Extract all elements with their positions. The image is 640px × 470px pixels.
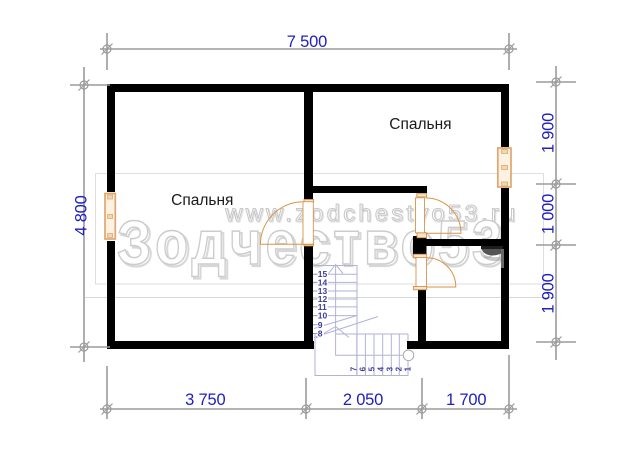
svg-text:8: 8 <box>318 328 323 338</box>
svg-text:1 000: 1 000 <box>540 194 558 234</box>
svg-text:4: 4 <box>377 366 386 371</box>
svg-text:7: 7 <box>350 366 359 371</box>
svg-text:5: 5 <box>368 366 377 371</box>
svg-text:1 700: 1 700 <box>446 391 486 409</box>
svg-text:1 900: 1 900 <box>540 273 558 313</box>
svg-text:Спальня: Спальня <box>171 192 233 209</box>
svg-text:2: 2 <box>395 366 404 371</box>
svg-text:7 500: 7 500 <box>287 33 327 51</box>
svg-text:3 750: 3 750 <box>185 391 225 409</box>
svg-text:4 800: 4 800 <box>73 195 91 235</box>
svg-text:1: 1 <box>404 366 413 371</box>
svg-text:2 050: 2 050 <box>343 391 383 409</box>
svg-text:Спальня: Спальня <box>389 116 451 133</box>
svg-text:6: 6 <box>359 366 368 371</box>
svg-text:1 900: 1 900 <box>540 113 558 153</box>
svg-text:3: 3 <box>386 366 395 371</box>
